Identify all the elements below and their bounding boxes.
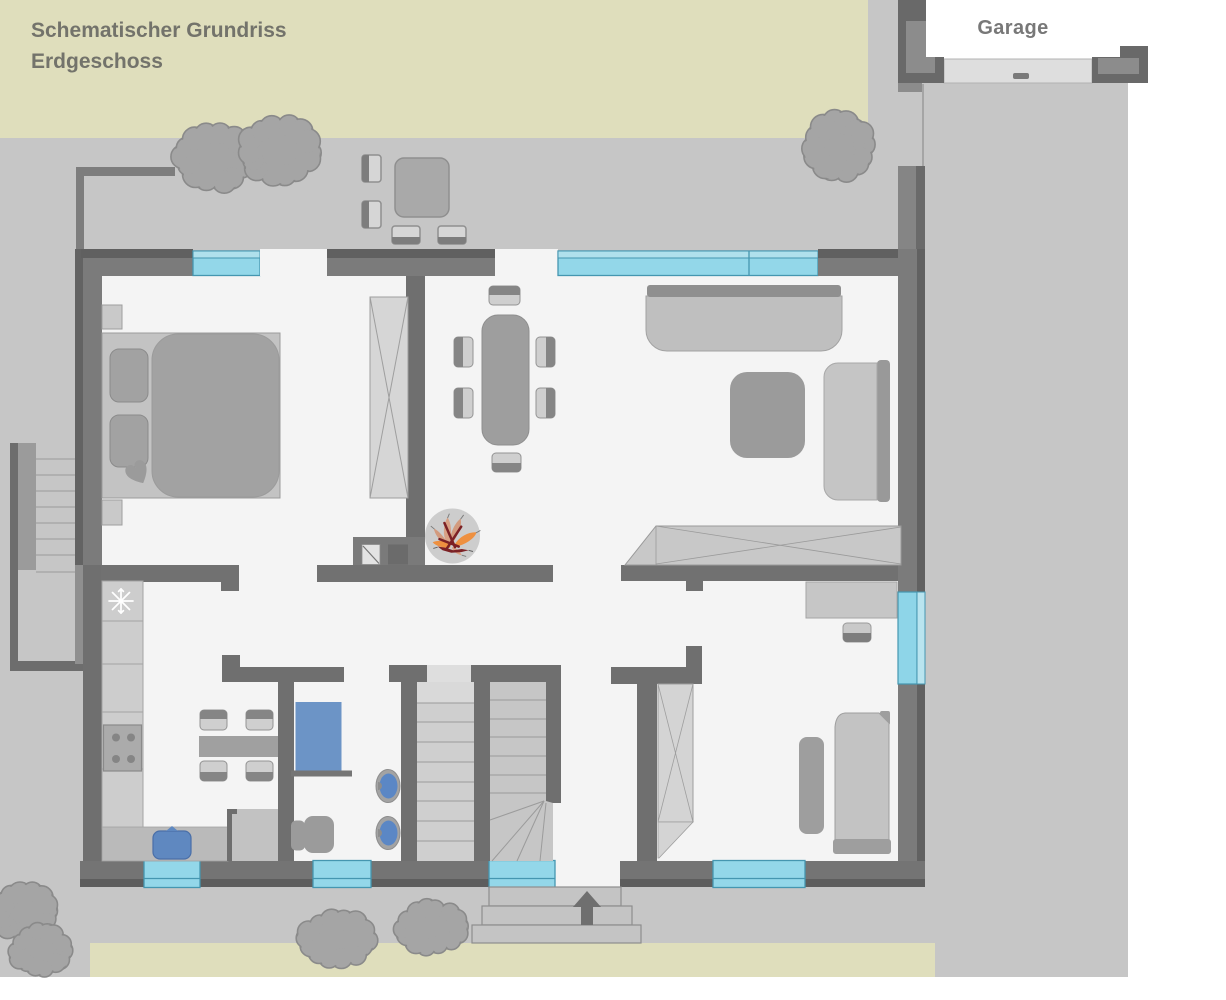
svg-text:Erdgeschoss: Erdgeschoss	[31, 50, 163, 73]
svg-text:Garage: Garage	[977, 17, 1048, 39]
svg-text:Schematischer Grundriss: Schematischer Grundriss	[31, 19, 287, 42]
